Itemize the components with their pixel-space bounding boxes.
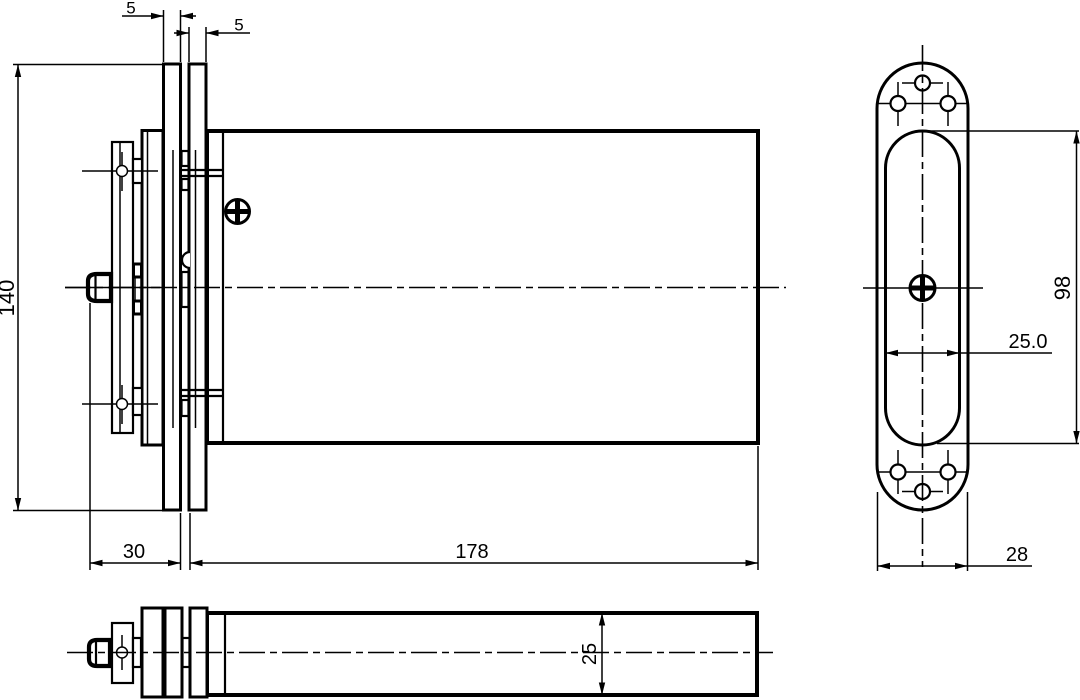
- dimension-length-178: 178: [190, 446, 758, 570]
- dim-label-slot-width: 25.0: [1009, 331, 1048, 353]
- phillips-screw-icon-front: [226, 200, 250, 224]
- dim-label-plate1: 5: [126, 0, 135, 18]
- dim-label-plate2: 5: [234, 16, 243, 35]
- dim-label-body-height: 25: [579, 643, 601, 665]
- dim-label-offset: 30: [123, 541, 145, 563]
- dimension-plate1-5: 5: [122, 0, 196, 62]
- dim-label-slot-height: 98: [1050, 276, 1075, 300]
- dimension-plate2-5: 5: [174, 16, 250, 63]
- body-top-outline: [207, 613, 757, 695]
- mounting-tab-bottom: [133, 388, 142, 415]
- spring-clip-detail: [134, 264, 142, 314]
- side-view: [863, 45, 983, 567]
- top-view: [67, 608, 773, 697]
- drawing-canvas: 5 5 140 30 178: [0, 0, 1080, 700]
- technical-drawing-page: 5 5 140 30 178: [0, 0, 1080, 700]
- pivot-arc-detail: [182, 252, 190, 268]
- front-view: [65, 64, 786, 510]
- dim-label-plate-width: 28: [1006, 544, 1028, 566]
- dim-label-height: 140: [0, 280, 19, 317]
- dim-label-length: 178: [455, 541, 488, 563]
